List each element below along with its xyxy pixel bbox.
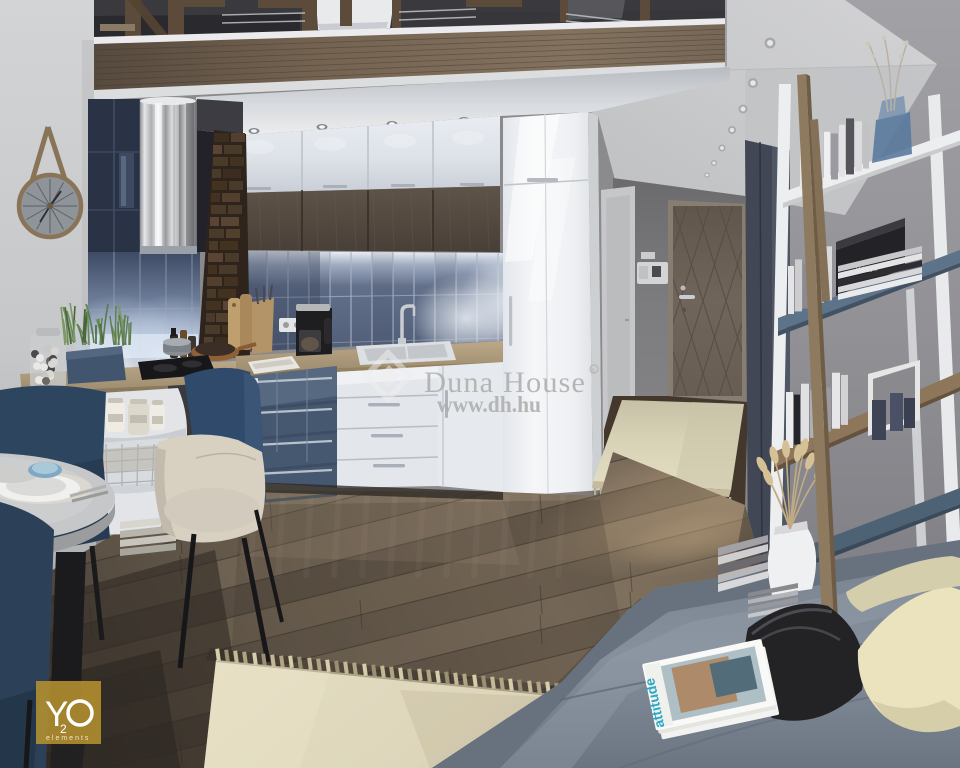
svg-text:elements: elements bbox=[46, 735, 90, 742]
svg-text:www.dh.hu: www.dh.hu bbox=[437, 392, 541, 417]
svg-text:2: 2 bbox=[60, 722, 67, 736]
svg-text:R: R bbox=[591, 368, 595, 374]
